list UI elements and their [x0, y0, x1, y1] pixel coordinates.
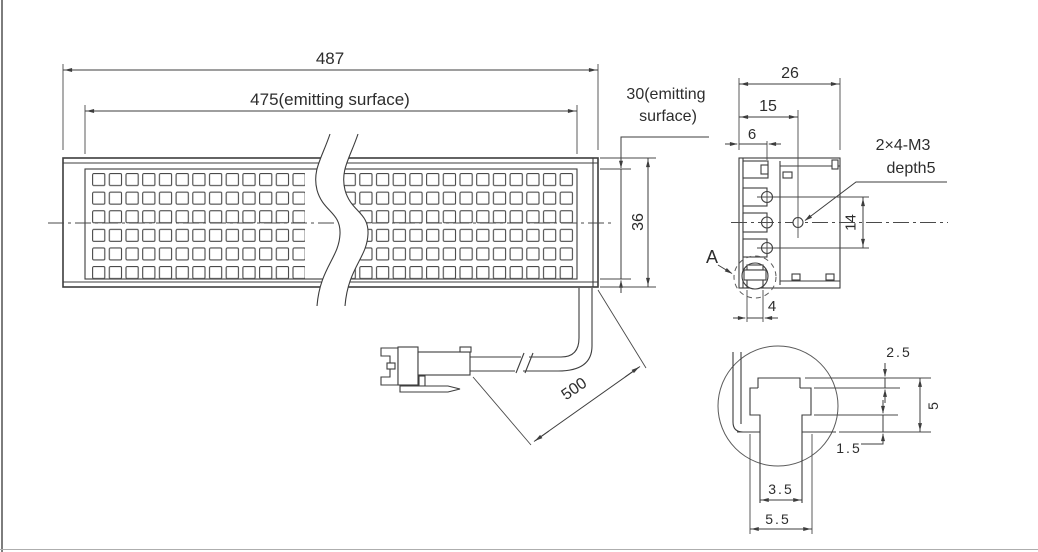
tap-note-line1: 2×4-M3	[876, 137, 931, 154]
dim-30-label-line2: surface)	[639, 108, 697, 125]
break-symbol	[316, 134, 368, 306]
connector-latch	[400, 386, 460, 392]
tap-note-line2: depth5	[887, 160, 936, 177]
cable-assembly	[381, 288, 592, 392]
connector-pin	[387, 363, 395, 369]
front-view: 487 475(emitting surface) 30(emitting su…	[48, 49, 709, 445]
detail-a-view: 2.5 5 1.5 3	[718, 344, 941, 534]
dim-5-label: 5	[925, 400, 941, 410]
tap-note: 2×4-M3 depth5	[805, 137, 947, 221]
dim-slot-width: 4	[733, 290, 778, 322]
dim-500-label: 500	[559, 375, 591, 404]
dim-emitting-height: 30(emitting surface)	[600, 86, 709, 293]
dim-30-label-line1: 30(emitting	[626, 86, 705, 103]
dim-tap-offset: 15	[739, 98, 798, 117]
dim-36-label: 36	[630, 213, 647, 231]
dim-26-label: 26	[781, 65, 799, 82]
dim-3-5-label: 3.5	[768, 481, 793, 497]
dim-lip-height: 1.5	[814, 400, 898, 456]
page-left-border	[1, 0, 3, 552]
dim-4-label: 4	[768, 298, 776, 315]
dim-groove-offset: 6	[725, 126, 781, 160]
dim-cable-length: 500	[473, 290, 646, 445]
page-bottom-border	[0, 549, 1038, 550]
section-bottom-slot	[742, 263, 768, 289]
cable-bend	[558, 288, 592, 371]
dim-neck-width: 3.5	[760, 481, 802, 500]
detail-boundary-circle	[718, 346, 838, 466]
dim-487-label: 487	[316, 49, 344, 68]
connector-tab	[460, 347, 471, 352]
connector-body	[398, 347, 418, 385]
dim-recess-depth: 2.5	[805, 344, 931, 403]
dim-15-label: 15	[759, 98, 777, 115]
connector-barrel	[418, 352, 470, 375]
cable-break-ticks	[516, 353, 533, 373]
dim-slot-depth: 5	[839, 378, 941, 432]
detail-a-letter: A	[706, 247, 718, 267]
dim-6-label: 6	[748, 126, 756, 143]
dim-475-label: 475(emitting surface)	[250, 90, 410, 109]
technical-drawing: 487 475(emitting surface) 30(emitting su…	[0, 0, 1038, 552]
section-left-grooves	[743, 161, 773, 257]
dim-14-label: 14	[843, 214, 860, 231]
dim-bar-height: 36	[600, 158, 656, 287]
detail-a-reference: A	[706, 247, 732, 274]
drawing-page: 487 475(emitting surface) 30(emitting su…	[0, 0, 1038, 552]
cable-wires	[470, 357, 561, 371]
connector-latch-link	[419, 376, 425, 386]
section-view: 26 15 6 2×4-M3 depth5	[706, 65, 948, 322]
dim-2-5-label: 2.5	[886, 344, 911, 360]
dim-1-5-label: 1.5	[836, 440, 861, 456]
dim-5-5-label: 5.5	[765, 511, 790, 527]
